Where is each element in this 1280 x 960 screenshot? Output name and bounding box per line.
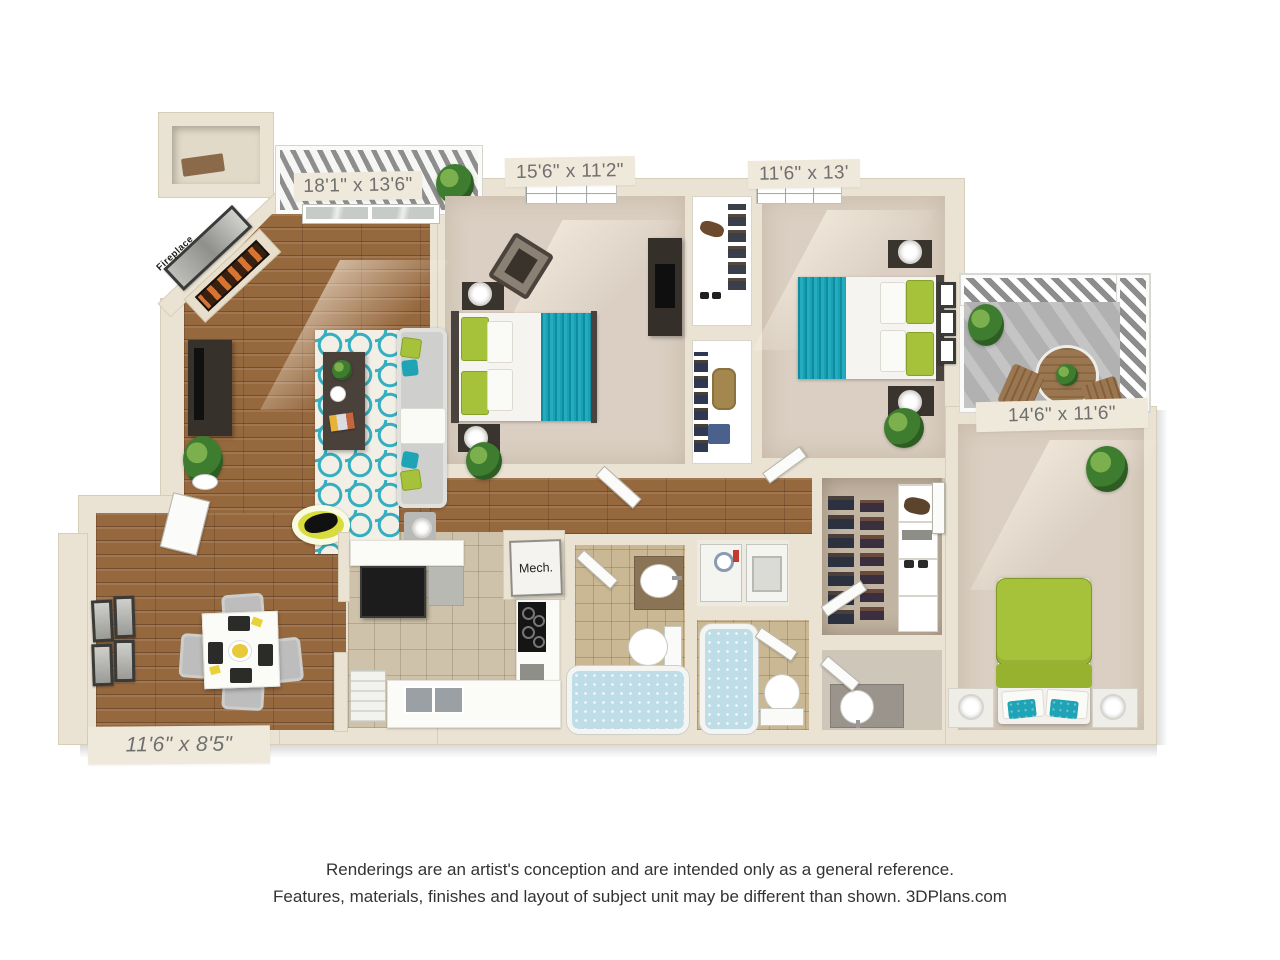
placemat (258, 644, 273, 666)
bathroom-sink (640, 564, 678, 598)
lamp (1100, 694, 1126, 720)
glass-pane (306, 207, 368, 219)
mech-closet-door: Mech. (509, 539, 563, 597)
kitchen-wall (338, 532, 350, 602)
wall-art (938, 338, 956, 364)
book (329, 412, 355, 431)
hanging-clothes (860, 500, 884, 620)
wall-art (938, 310, 956, 336)
burner (522, 626, 535, 639)
throw-pillow (400, 337, 423, 360)
hanging-clothes (694, 352, 708, 452)
duvet-green (996, 578, 1092, 666)
kitchen-counter (350, 540, 464, 566)
bedroom1-dims: 15'6" x 11'2" (516, 160, 624, 184)
mech-closet-label: Mech. (519, 560, 554, 575)
floorplan-image: Fireplace Mech. (0, 0, 1280, 960)
balcony-railing (1120, 278, 1146, 408)
toilet-tank (760, 708, 804, 726)
wall-art (91, 644, 113, 687)
table-lamp (412, 518, 432, 538)
detergent (733, 550, 739, 562)
headboard (451, 311, 459, 423)
shoes (700, 292, 709, 299)
placemat (208, 642, 223, 664)
folded-clothes (902, 530, 932, 540)
glass-pane (372, 207, 434, 219)
accent-pillow (1049, 699, 1079, 720)
faucet (672, 576, 682, 580)
centerpiece-bowl (232, 644, 248, 658)
bedroom2-label: 11'6" x 13' (748, 159, 860, 189)
wall (58, 533, 88, 745)
pillow (906, 280, 934, 324)
table-plant (332, 360, 352, 380)
washer-dial (714, 552, 734, 572)
dining-room-label: 11'6" x 8'5" (88, 725, 270, 765)
pillow (906, 332, 934, 376)
potted-plant (466, 442, 502, 480)
dining-room-dims: 11'6" x 8'5" (126, 733, 233, 758)
living-room-dims: 18'1" x 13'6" (303, 174, 413, 198)
master-bedroom-label: 14'6" x 11'6" (976, 398, 1149, 432)
shoes (904, 560, 914, 568)
balcony-railing (964, 278, 1146, 302)
master-bedroom-dims: 14'6" x 11'6" (1008, 403, 1117, 428)
disclaimer-line2: Features, materials, finishes and layout… (0, 883, 1280, 910)
duvet-fold (996, 664, 1092, 688)
throw-pillow (400, 469, 423, 492)
faucet (856, 720, 860, 728)
bathroom-sink (840, 690, 874, 724)
burner (533, 636, 545, 648)
bathtub (567, 666, 689, 734)
dryer-door (752, 556, 782, 592)
kitchen-counter-gray (428, 566, 464, 606)
bathtub (700, 624, 758, 734)
potted-plant (1086, 446, 1128, 492)
placemat (228, 616, 250, 631)
kitchen-wall (334, 652, 348, 732)
pillow (461, 317, 489, 361)
toilet-bowl (628, 628, 668, 666)
bed-blanket (798, 277, 846, 379)
wall-art (91, 599, 114, 642)
wall-art (113, 596, 135, 639)
pillow (880, 330, 906, 372)
folded-jeans (708, 424, 730, 444)
vase (330, 386, 346, 402)
hanging-clothes (728, 204, 746, 290)
footboard (591, 311, 597, 423)
placemat (230, 668, 252, 683)
shoes (918, 560, 928, 568)
throw-blanket (400, 408, 446, 444)
potted-plant (884, 408, 924, 448)
tv-screen (194, 348, 204, 420)
pillow (487, 369, 513, 411)
master-door (932, 482, 945, 534)
disclaimer-line1: Renderings are an artist's conception an… (0, 856, 1280, 883)
sink-divider (432, 686, 435, 714)
throw-pillow (401, 359, 419, 377)
bedroom1-label: 15'6" x 11'2" (505, 156, 635, 187)
lamp (898, 240, 922, 264)
throw-pillow (401, 451, 420, 470)
bed-blanket (541, 313, 591, 421)
toilet-bowl (764, 674, 800, 712)
wall-art (938, 282, 956, 308)
plant-pot (192, 474, 218, 490)
table-plant (1056, 364, 1078, 386)
appliance (350, 670, 386, 722)
pillow (461, 371, 489, 415)
pillow (880, 282, 906, 324)
shoes (712, 292, 721, 299)
shadow (1156, 410, 1168, 745)
accent-pillow (1007, 699, 1037, 720)
potted-plant (968, 304, 1004, 346)
wall-art (114, 640, 136, 682)
disclaimer: Renderings are an artist's conception an… (0, 856, 1280, 910)
lamp (958, 694, 984, 720)
living-room-label: 18'1" x 13'6" (294, 171, 422, 201)
tv-screen (655, 264, 675, 308)
duffel-bag (712, 368, 736, 410)
lamp (468, 282, 492, 306)
refrigerator (360, 566, 426, 618)
pillow (487, 321, 513, 363)
burner (533, 615, 545, 627)
bedroom2-dims: 11'6" x 13' (759, 162, 849, 186)
